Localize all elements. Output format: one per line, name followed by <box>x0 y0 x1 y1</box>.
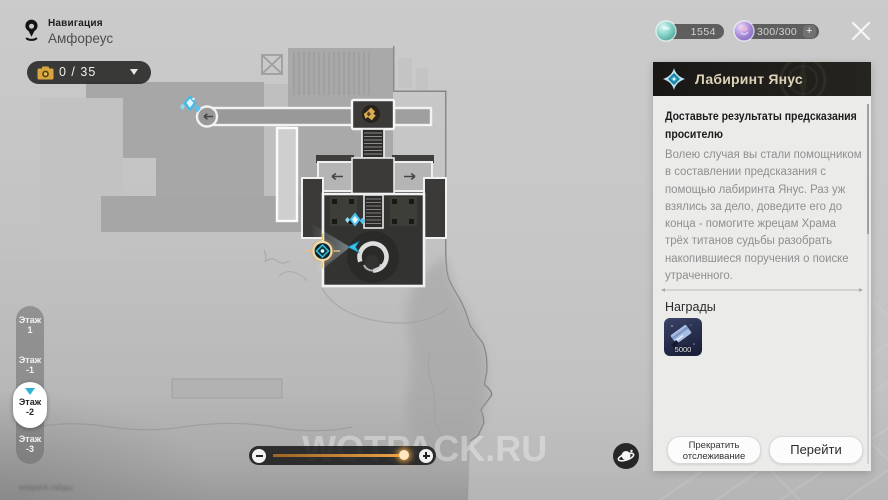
svg-text:wotpack.гайды: wotpack.гайды <box>18 483 73 492</box>
